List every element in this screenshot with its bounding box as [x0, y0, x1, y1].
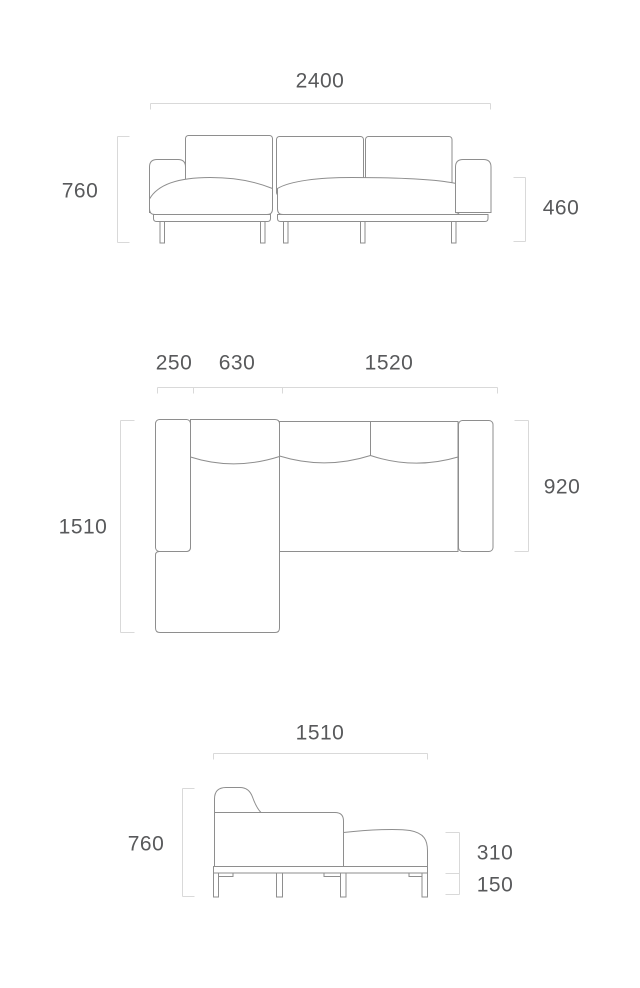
- side-plate-2: [324, 873, 341, 877]
- side-arm-body: [215, 813, 344, 867]
- front-overall-width-label: 2400: [296, 71, 345, 92]
- plan-right-arm: [459, 421, 494, 552]
- front-leg-2: [261, 222, 266, 244]
- side-leg-3: [341, 873, 347, 897]
- side-seat-and-base-dimension-line: [446, 833, 460, 895]
- top-plan-view: [121, 388, 529, 633]
- front-seat-cushion-right: [278, 178, 461, 215]
- front-leg-5: [452, 222, 457, 244]
- side-leg-1: [214, 873, 219, 897]
- side-seat-section: [344, 829, 428, 866]
- side-overall-depth-dimension-line: [214, 754, 428, 760]
- plan-left-arm: [156, 420, 191, 552]
- front-overall-width-dimension-line: [151, 104, 491, 110]
- side-overall-height-dimension-line: [183, 789, 195, 897]
- plan-chaise-width-label: 630: [219, 353, 256, 374]
- front-base-left: [154, 215, 271, 222]
- side-leg-plates: [216, 873, 426, 877]
- plan-seat-width-label: 1520: [365, 353, 414, 374]
- drawing-canvas: 2400 760 460 250 630 1520 1510 920 1510 …: [0, 0, 640, 988]
- side-seat-section-height-label: 310: [477, 843, 514, 864]
- side-legs: [214, 873, 428, 897]
- front-base-right: [278, 215, 489, 222]
- plan-overall-depth-label: 1510: [59, 517, 108, 538]
- plan-arm-width-label: 250: [156, 353, 193, 374]
- plan-main-seat-body: [280, 422, 459, 552]
- side-base-height-label: 150: [477, 875, 514, 896]
- side-overall-height-label: 760: [128, 834, 165, 855]
- front-leg-3: [284, 222, 289, 244]
- front-arm-height-dimension-line: [514, 178, 526, 242]
- front-leg-1: [160, 222, 165, 244]
- front-sofa-drawing: [150, 136, 492, 244]
- side-leg-2: [277, 873, 283, 897]
- side-back-cushion: [215, 788, 262, 813]
- plan-body-depth-label: 920: [544, 477, 581, 498]
- front-elevation-view: [118, 104, 526, 244]
- front-legs: [160, 222, 456, 244]
- front-leg-4: [361, 222, 366, 244]
- front-arm-height-label: 460: [543, 198, 580, 219]
- plan-sofa-drawing: [156, 420, 494, 633]
- side-leg-4: [422, 873, 428, 897]
- side-overall-depth-label: 1510: [296, 723, 345, 744]
- front-overall-height-label: 760: [62, 181, 99, 202]
- front-right-arm: [456, 160, 492, 213]
- plan-overall-depth-dimension-line: [121, 421, 135, 633]
- plan-width-chain-dimension-line: [158, 388, 498, 394]
- front-overall-height-dimension-line: [118, 137, 130, 243]
- side-sofa-drawing: [214, 788, 428, 898]
- side-base-rail: [214, 867, 428, 874]
- plan-body-depth-dimension-line: [515, 421, 529, 552]
- side-elevation-view: [183, 754, 460, 898]
